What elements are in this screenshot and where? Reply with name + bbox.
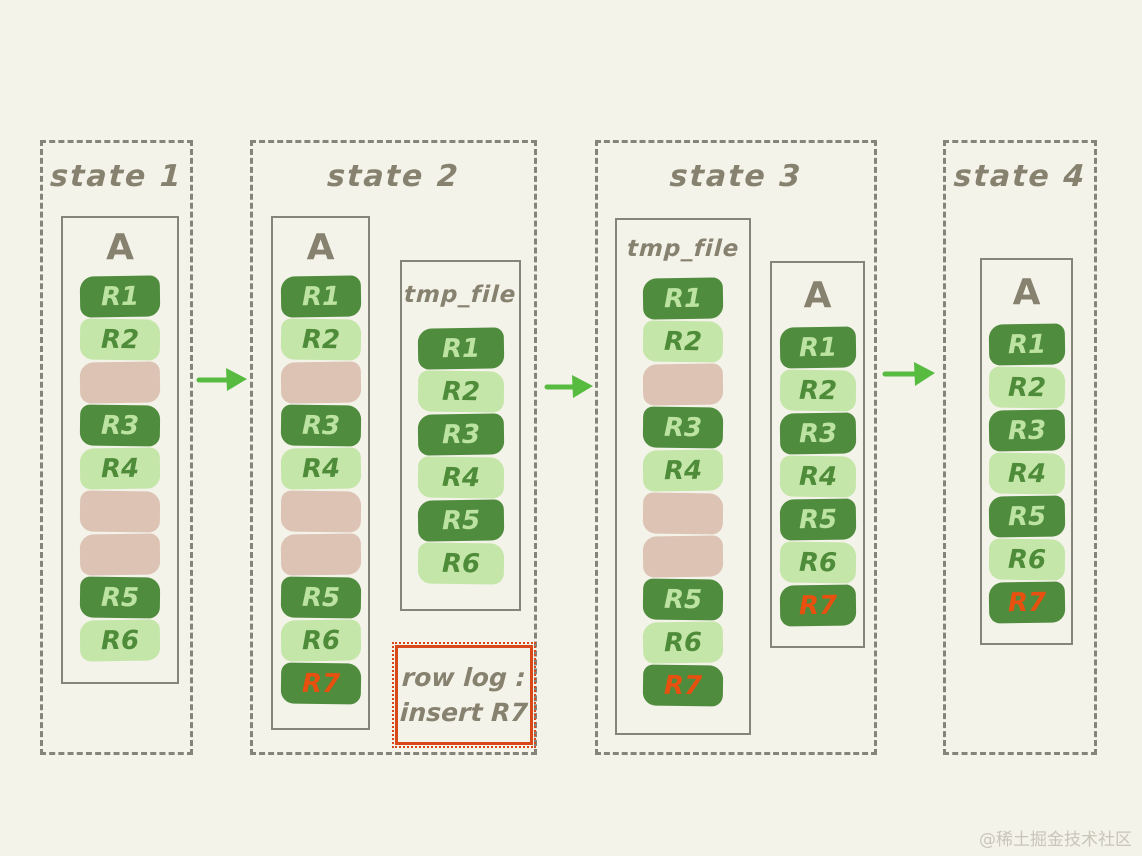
row-log-line1: row log :: [401, 663, 526, 692]
row-r3: R3: [643, 406, 724, 448]
tmp-file-label: tmp_file: [625, 220, 740, 278]
state-2-panel: state 2 A R1R2R3R4R5R6R7 tmp_file R1R2R3…: [250, 140, 537, 755]
empty-row-slot: [80, 533, 161, 575]
row-r4: R4: [988, 452, 1065, 494]
state-3-file-tmp: tmp_file R1R2R3R4R5R6R7: [615, 218, 751, 735]
row-log-line2: insert R7: [399, 698, 528, 727]
row-r5: R5: [80, 576, 161, 618]
row-r6: R6: [988, 538, 1065, 580]
row-r6: R6: [779, 541, 856, 583]
watermark: @稀土掘金技术社区: [979, 825, 1132, 850]
empty-row-slot: [643, 535, 724, 577]
row-r3: R3: [417, 413, 504, 455]
state-3-panel: state 3 tmp_file R1R2R3R4R5R6R7 A R1R2R3…: [595, 140, 877, 755]
row-r5: R5: [280, 576, 361, 618]
file-a-label: A: [307, 218, 335, 276]
file-a-label: A: [1013, 260, 1041, 324]
empty-row-slot: [280, 361, 361, 403]
arrow-state3-to-state4-icon: [882, 359, 936, 387]
row-r4: R4: [779, 455, 856, 497]
tmp-file-label: tmp_file: [403, 262, 519, 328]
row-r1: R1: [988, 323, 1065, 365]
row-r3: R3: [80, 404, 161, 446]
row-r2: R2: [80, 318, 161, 360]
row-r6: R6: [280, 619, 361, 661]
row-r1: R1: [80, 275, 161, 317]
row-r7: R7: [643, 664, 724, 706]
file-a-label: A: [804, 263, 832, 327]
row-log-box: row log : insert R7: [395, 645, 533, 745]
row-r1: R1: [779, 326, 856, 368]
row-r7: R7: [779, 584, 856, 626]
row-r4: R4: [280, 447, 361, 489]
empty-row-slot: [80, 361, 161, 403]
row-r6: R6: [80, 619, 161, 661]
row-r5: R5: [417, 499, 504, 541]
empty-row-slot: [643, 492, 724, 534]
row-r5: R5: [779, 498, 856, 540]
row-r4: R4: [417, 456, 504, 498]
row-r4: R4: [643, 449, 724, 491]
file-a-rows: R1R2R3R4R5R6R7: [780, 327, 856, 628]
state-1-title: state 1: [42, 159, 191, 194]
state-4-panel: state 4 A R1R2R3R4R5R6R7: [943, 140, 1097, 755]
state-3-title: state 3: [597, 159, 875, 194]
file-a-rows: R1R2R3R4R5R6R7: [281, 276, 361, 706]
row-r1: R1: [280, 275, 361, 317]
row-r2: R2: [779, 369, 856, 411]
empty-row-slot: [80, 490, 161, 532]
state-1-file-a: A R1R2R3R4R5R6: [61, 216, 179, 684]
state-4-file-a: A R1R2R3R4R5R6R7: [980, 258, 1073, 645]
row-r6: R6: [417, 542, 504, 584]
empty-row-slot: [280, 533, 361, 575]
row-r1: R1: [417, 327, 504, 369]
row-r3: R3: [988, 409, 1065, 451]
row-r1: R1: [643, 277, 724, 319]
row-r5: R5: [643, 578, 724, 620]
file-a-rows: R1R2R3R4R5R6R7: [989, 324, 1065, 625]
row-r2: R2: [643, 320, 724, 362]
row-r2: R2: [417, 370, 504, 412]
row-r7: R7: [988, 581, 1065, 623]
arrow-state2-to-state3-icon: [544, 373, 594, 399]
state-2-file-tmp: tmp_file R1R2R3R4R5R6: [400, 260, 521, 611]
state-2-title: state 2: [252, 159, 535, 194]
row-r4: R4: [80, 447, 161, 489]
state-2-file-a: A R1R2R3R4R5R6R7: [271, 216, 370, 730]
tmp-file-rows: R1R2R3R4R5R6R7: [643, 278, 723, 708]
state-3-file-a: A R1R2R3R4R5R6R7: [770, 261, 865, 648]
row-r3: R3: [779, 412, 856, 454]
tmp-file-rows: R1R2R3R4R5R6: [418, 328, 504, 586]
row-r6: R6: [643, 621, 724, 663]
row-r2: R2: [280, 318, 361, 360]
state-1-panel: state 1 A R1R2R3R4R5R6: [40, 140, 193, 755]
empty-row-slot: [280, 490, 361, 532]
file-a-rows: R1R2R3R4R5R6: [80, 276, 160, 663]
diagram-canvas: state 1 A R1R2R3R4R5R6 state 2 A R1R2R3R…: [0, 0, 1142, 856]
row-r2: R2: [988, 366, 1065, 408]
file-a-label: A: [106, 218, 134, 276]
row-r3: R3: [280, 404, 361, 446]
row-r7: R7: [280, 662, 361, 704]
arrow-state1-to-state2-icon: [196, 366, 248, 392]
state-4-title: state 4: [945, 159, 1095, 194]
empty-row-slot: [643, 363, 724, 405]
row-r5: R5: [988, 495, 1065, 537]
